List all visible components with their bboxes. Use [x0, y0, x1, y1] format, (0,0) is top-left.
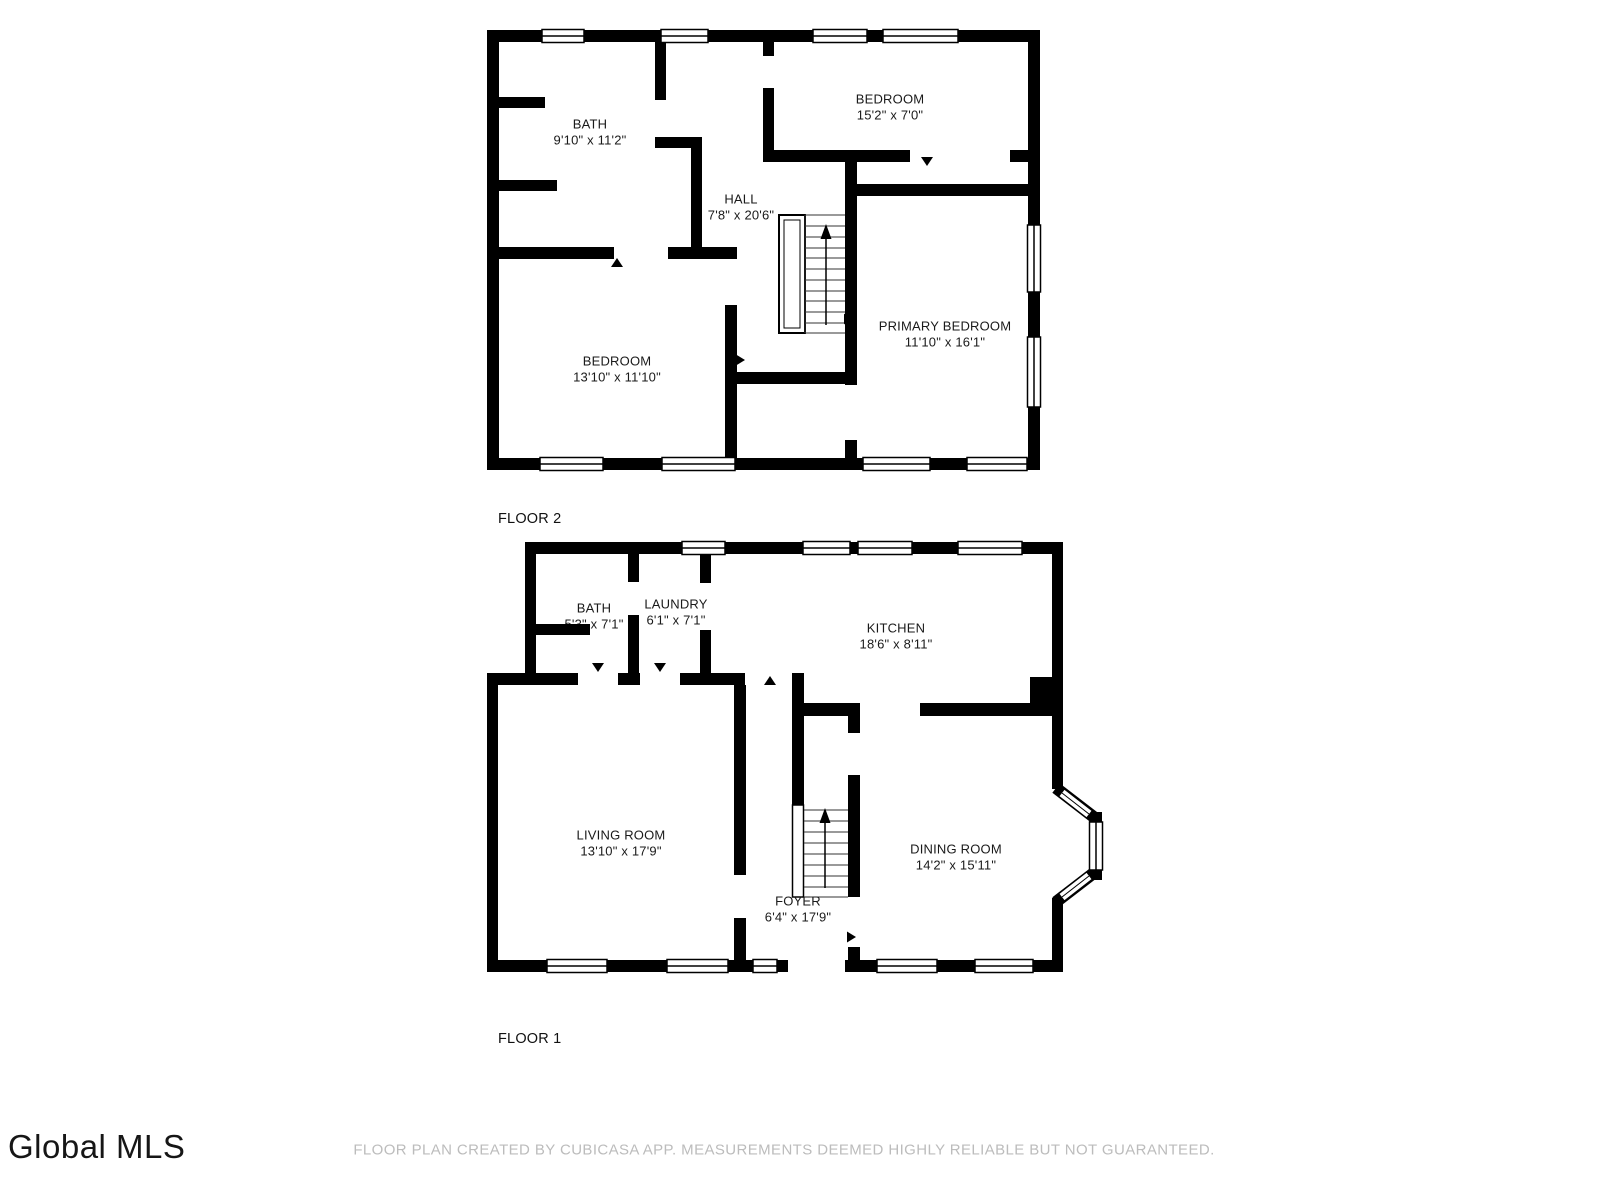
- room-dims: 18'6" x 8'11": [860, 636, 933, 652]
- room-dims: 9'10" x 11'2": [554, 132, 627, 148]
- room-label-living-room-f1: LIVING ROOM 13'10" x 17'9": [577, 828, 666, 859]
- room-dims: 6'1" x 7'1": [644, 612, 707, 628]
- floor-plan-page: BATH 9'10" x 11'2" BEDROOM 15'2" x 7'0" …: [0, 0, 1600, 1200]
- room-name: PRIMARY BEDROOM: [879, 319, 1012, 335]
- floor-1-title: FLOOR 1: [498, 1031, 561, 1047]
- room-dims: 6'4" x 17'9": [765, 909, 831, 925]
- room-label-primary-bedroom-f2: PRIMARY BEDROOM 11'10" x 16'1": [879, 319, 1012, 350]
- floor1-stairs: [793, 805, 849, 897]
- chimney: [1030, 677, 1057, 713]
- disclaimer-text: FLOOR PLAN CREATED BY CUBICASA APP. MEAS…: [353, 1142, 1214, 1159]
- stairs-up-arrow-icon: [821, 224, 832, 325]
- front-door-opening: [788, 959, 845, 973]
- global-mls-logo: Global MLS: [8, 1128, 185, 1166]
- bay-window: [1056, 788, 1103, 902]
- room-dims: 13'10" x 11'10": [573, 369, 661, 385]
- room-name: KITCHEN: [860, 621, 933, 637]
- room-label-hall-f2: HALL 7'8" x 20'6": [708, 192, 774, 223]
- room-label-bedroom-bottom-f2: BEDROOM 13'10" x 11'10": [573, 354, 661, 385]
- room-name: LAUNDRY: [644, 597, 707, 613]
- floor2-stairs: [779, 215, 845, 333]
- room-name: FOYER: [765, 894, 831, 910]
- room-name: LIVING ROOM: [577, 828, 666, 844]
- room-dims: 7'8" x 20'6": [708, 207, 774, 223]
- room-name: BATH: [554, 117, 627, 133]
- room-name: BEDROOM: [856, 92, 925, 108]
- floor2-plan: [487, 30, 1041, 471]
- room-label-dining-room-f1: DINING ROOM 14'2" x 15'11": [910, 842, 1002, 873]
- room-dims: 15'2" x 7'0": [856, 107, 925, 123]
- room-dims: 13'10" x 17'9": [577, 843, 666, 859]
- room-label-bath-f2: BATH 9'10" x 11'2": [554, 117, 627, 148]
- floor-2-title: FLOOR 2: [498, 511, 561, 527]
- floor1-door-arrows: [592, 663, 934, 943]
- floor2-walls: [487, 30, 1040, 470]
- room-label-kitchen-f1: KITCHEN 18'6" x 8'11": [860, 621, 933, 652]
- room-label-laundry-f1: LAUNDRY 6'1" x 7'1": [644, 597, 707, 628]
- room-dims: 11'10" x 16'1": [879, 334, 1012, 350]
- room-label-foyer-f1: FOYER 6'4" x 17'9": [765, 894, 831, 925]
- room-name: HALL: [708, 192, 774, 208]
- room-name: BEDROOM: [573, 354, 661, 370]
- room-label-bedroom-top-f2: BEDROOM 15'2" x 7'0": [856, 92, 925, 123]
- room-name: DINING ROOM: [910, 842, 1002, 858]
- room-dims: 14'2" x 15'11": [910, 857, 1002, 873]
- floor-plan-drawing: [0, 0, 1600, 1200]
